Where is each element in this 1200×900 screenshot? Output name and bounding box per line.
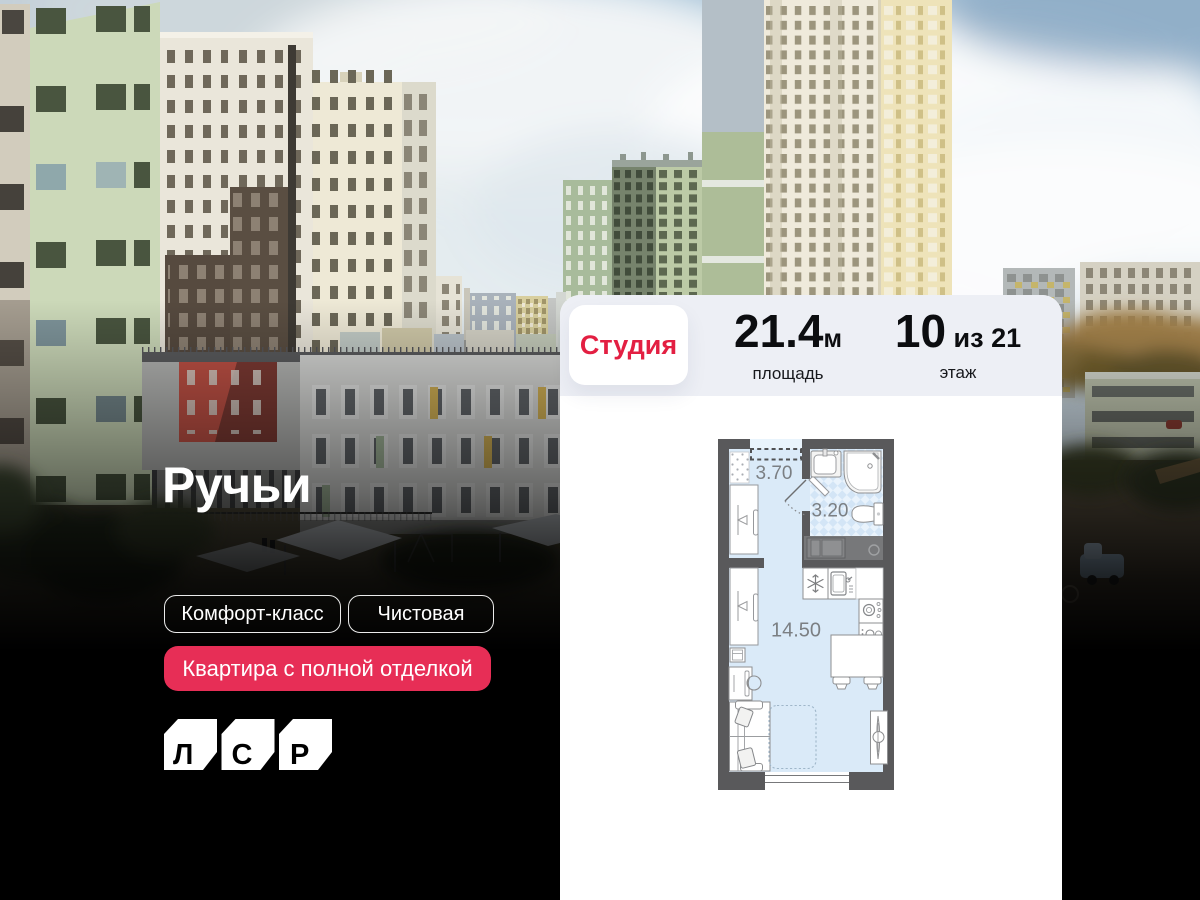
svg-text:Л: Л bbox=[173, 739, 193, 771]
svg-text:3.20: 3.20 bbox=[812, 501, 849, 522]
svg-text:14.50: 14.50 bbox=[771, 620, 821, 642]
svg-text:С: С bbox=[232, 739, 253, 771]
svg-text:3.70: 3.70 bbox=[756, 463, 793, 484]
svg-text:Р: Р bbox=[290, 739, 309, 771]
